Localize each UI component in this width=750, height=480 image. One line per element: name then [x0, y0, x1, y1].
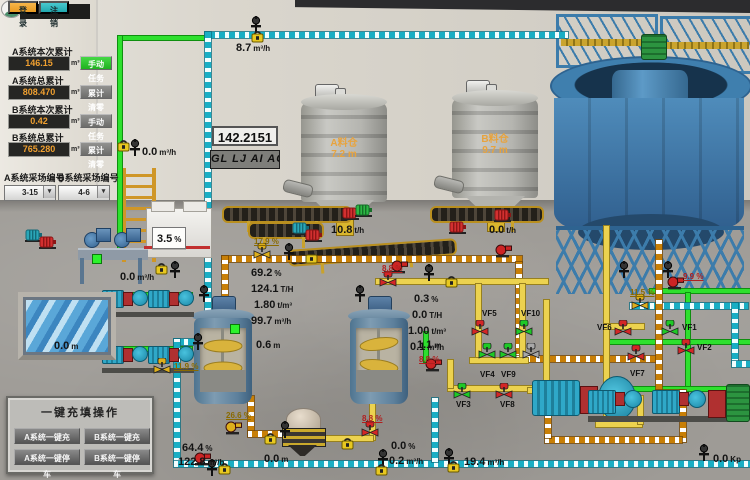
reading-label: 99.7m³/h	[251, 311, 291, 329]
vf4-valve-label: VF4	[480, 370, 495, 379]
silo-a-name: A料仓	[301, 134, 387, 149]
mixer-a-slurry	[200, 370, 246, 392]
motor-icon[interactable]	[39, 236, 56, 249]
hmi-screen: A料仓 7.2 m B料仓 9.7 m	[0, 0, 750, 480]
conveyor-silo-b	[430, 206, 544, 223]
silo-b-level-unit: m	[499, 145, 508, 156]
valve-opening-label: 8.8 %	[419, 355, 439, 364]
totals-b-total-input[interactable]: 765.280	[8, 142, 70, 157]
flow-meter-icon	[155, 261, 168, 275]
mixer-tank-b	[348, 296, 410, 408]
reading-label: 0.0t/h	[489, 220, 516, 238]
thickener-body	[554, 98, 744, 230]
flow-meter-icon	[375, 462, 388, 476]
silo-a-level: 7.2 m	[301, 149, 387, 160]
bottom-right-pump-1[interactable]	[588, 384, 640, 418]
valve-icon[interactable]	[152, 358, 172, 374]
site-b-label: B系统采场编号	[58, 171, 119, 184]
silo-b-level-value: 9.7	[482, 145, 496, 156]
mixer-tank-a	[192, 296, 254, 408]
reading-label: 0.0m³/h	[120, 267, 154, 285]
reading-label: 0.0m³/h	[142, 142, 176, 160]
vf3-valve-icon[interactable]	[452, 383, 472, 399]
cyan-pipe	[732, 303, 738, 363]
totals-a-current-input[interactable]: 146.15	[8, 56, 70, 71]
vf10-valve-label: VF10	[521, 309, 540, 318]
transmitter-icon	[169, 261, 181, 279]
accumulator-display: 142.2151	[212, 126, 278, 146]
valve-opening-label: 8.8 %	[382, 264, 402, 273]
reading-label: 10.8t/h	[331, 220, 364, 238]
silo-a-level-unit: m	[348, 149, 357, 160]
reading-label: 0.6m	[256, 335, 280, 353]
logout-button[interactable]: 注 销	[39, 1, 69, 14]
site-b-dropdown[interactable]: 4-6▾	[58, 185, 110, 201]
manual-task-b-button[interactable]: 手动任务	[80, 114, 112, 128]
silo-a-body: A料仓 7.2 m	[301, 100, 387, 202]
flow-meter-icon	[447, 459, 460, 473]
totals-a-total-input[interactable]: 808.470	[8, 85, 70, 100]
reading-label: 0.0Kp	[713, 449, 741, 467]
reading-label: 1.1m	[417, 335, 441, 353]
reset-b-button[interactable]: 累计清零	[80, 142, 112, 156]
transmitter-icon	[192, 333, 204, 351]
orange-pipe	[545, 437, 682, 443]
cyan-pipe	[432, 398, 438, 462]
silo-b-name: B料仓	[452, 130, 538, 145]
site-a-value: 3-15	[22, 188, 38, 197]
coupling-guard	[708, 390, 726, 418]
status-light	[230, 324, 240, 334]
motor-icon[interactable]	[449, 221, 466, 234]
platform-leg	[80, 258, 84, 284]
reading-label: 8.7m³/h	[236, 38, 270, 56]
yellow-pipe	[596, 422, 642, 427]
vf2-valve-label: VF2	[697, 343, 712, 352]
valve-opening-label: 17.9 %	[254, 237, 279, 246]
reset-a-button[interactable]: 累计清零	[80, 85, 112, 99]
reading-label: 0.0m	[54, 336, 78, 354]
vf8-valve-label: VF8	[500, 400, 515, 409]
totals-unit: m³	[71, 89, 80, 96]
valve-opening-label: 8.8 %	[362, 414, 382, 423]
vf7-valve-icon[interactable]	[626, 345, 646, 361]
transmitter-icon	[354, 285, 366, 303]
mixer-b-window	[356, 328, 402, 392]
cyan-pipe	[732, 361, 750, 367]
mixer-a-window	[200, 328, 246, 392]
manual-task-a-button[interactable]: 手动任务	[80, 56, 112, 70]
totals-unit: m³	[71, 60, 80, 67]
vf1-valve-label: VF1	[682, 323, 697, 332]
quick-ops-title: 一键充填操作	[8, 404, 152, 420]
thickener-legs	[556, 226, 744, 294]
site-a-label: A系统采场编号	[4, 171, 65, 184]
transmitter-icon	[283, 243, 295, 261]
b-one-key-fill-button[interactable]: B系统一键充填	[84, 428, 150, 444]
valve-opening-label: 9.9 %	[683, 272, 703, 281]
transmitter-icon	[698, 444, 710, 462]
cyan-pipe	[174, 461, 750, 467]
site-b-value: 4-6	[78, 188, 90, 197]
flow-meter-icon	[341, 436, 354, 450]
bottom-right-motor[interactable]	[726, 384, 750, 422]
platform-pump-2[interactable]	[114, 226, 140, 248]
flow-meter-icon	[445, 274, 458, 288]
reading-label: 0.0m	[264, 449, 288, 467]
reading-label: 3.5%	[152, 227, 186, 249]
transmitter-icon	[423, 264, 435, 282]
mixer-b-slurry	[356, 370, 402, 392]
silo-b-body: B料仓 9.7 m	[452, 96, 538, 198]
vf5-valve-icon[interactable]	[470, 320, 490, 336]
transmitter-icon	[129, 139, 141, 157]
vf9-valve-label: VF9	[501, 370, 516, 379]
totals-unit: m³	[71, 118, 80, 125]
vf1-valve-icon[interactable]	[660, 320, 680, 336]
valve-opening-label: 11.5 %	[630, 288, 654, 297]
reading-label: 19.4m³/h	[464, 452, 504, 470]
b-one-key-stop-button[interactable]: B系统一键停车	[84, 449, 150, 465]
vf10-valve-icon[interactable]	[514, 320, 534, 336]
vf6-valve-icon[interactable]	[613, 320, 633, 336]
totals-b-current-input[interactable]: 0.42	[8, 114, 70, 129]
totals-unit: m³	[71, 146, 80, 153]
chevron-down-icon[interactable]: ▾	[97, 186, 109, 198]
motor-icon[interactable]	[355, 204, 372, 217]
silo-a-level-value: 7.2	[331, 149, 345, 160]
transmitter-icon	[618, 261, 630, 279]
valve-opening-label: 11.9 %	[174, 362, 198, 371]
vf3-valve-label: VF3	[456, 400, 471, 409]
vf4-valve-icon[interactable]	[477, 343, 497, 359]
flow-meter-icon	[305, 250, 318, 264]
ticker-display: GL LJ AI ACC	[210, 150, 280, 169]
thickener-tank	[548, 6, 750, 296]
chevron-down-icon[interactable]: ▾	[43, 186, 55, 198]
status-light	[92, 254, 102, 264]
pump-icon[interactable]	[224, 421, 242, 435]
valve-opening-label: 26.6 %	[226, 411, 251, 420]
green-pipe	[118, 36, 208, 40]
login-button[interactable]: 登 录	[8, 1, 38, 14]
pump-icon[interactable]	[666, 276, 684, 290]
flow-meter-icon	[264, 431, 277, 445]
a-one-key-stop-button[interactable]: A系统一键停车	[14, 449, 80, 465]
valve-icon[interactable]	[521, 343, 541, 359]
green-pipe	[650, 289, 750, 293]
feed-pump-2[interactable]	[148, 284, 192, 310]
site-a-dropdown[interactable]: 3-15▾	[4, 185, 56, 201]
platform-pump-1[interactable]	[84, 226, 110, 248]
vf6-valve-label: VF6	[597, 323, 612, 332]
transmitter-icon	[198, 285, 210, 303]
reading-label: 122.8m³/h	[178, 452, 224, 470]
vf9-valve-icon[interactable]	[498, 343, 518, 359]
silo-b-level: 9.7 m	[452, 145, 538, 156]
vf2-valve-icon[interactable]	[676, 339, 696, 355]
reading-label: 0.2m³/h	[389, 451, 423, 469]
vf5-valve-label: VF5	[482, 309, 497, 318]
vf7-valve-label: VF7	[630, 369, 645, 378]
transmitter-icon	[279, 421, 291, 439]
valve-icon[interactable]	[360, 421, 380, 437]
thickener-drive-motor	[641, 34, 667, 60]
motor-icon[interactable]	[305, 229, 322, 242]
vf8-valve-icon[interactable]	[494, 383, 514, 399]
pump-icon[interactable]	[494, 244, 512, 258]
a-one-key-fill-button[interactable]: A系统一键充填	[14, 428, 80, 444]
bottom-right-pump-2[interactable]	[652, 384, 704, 418]
